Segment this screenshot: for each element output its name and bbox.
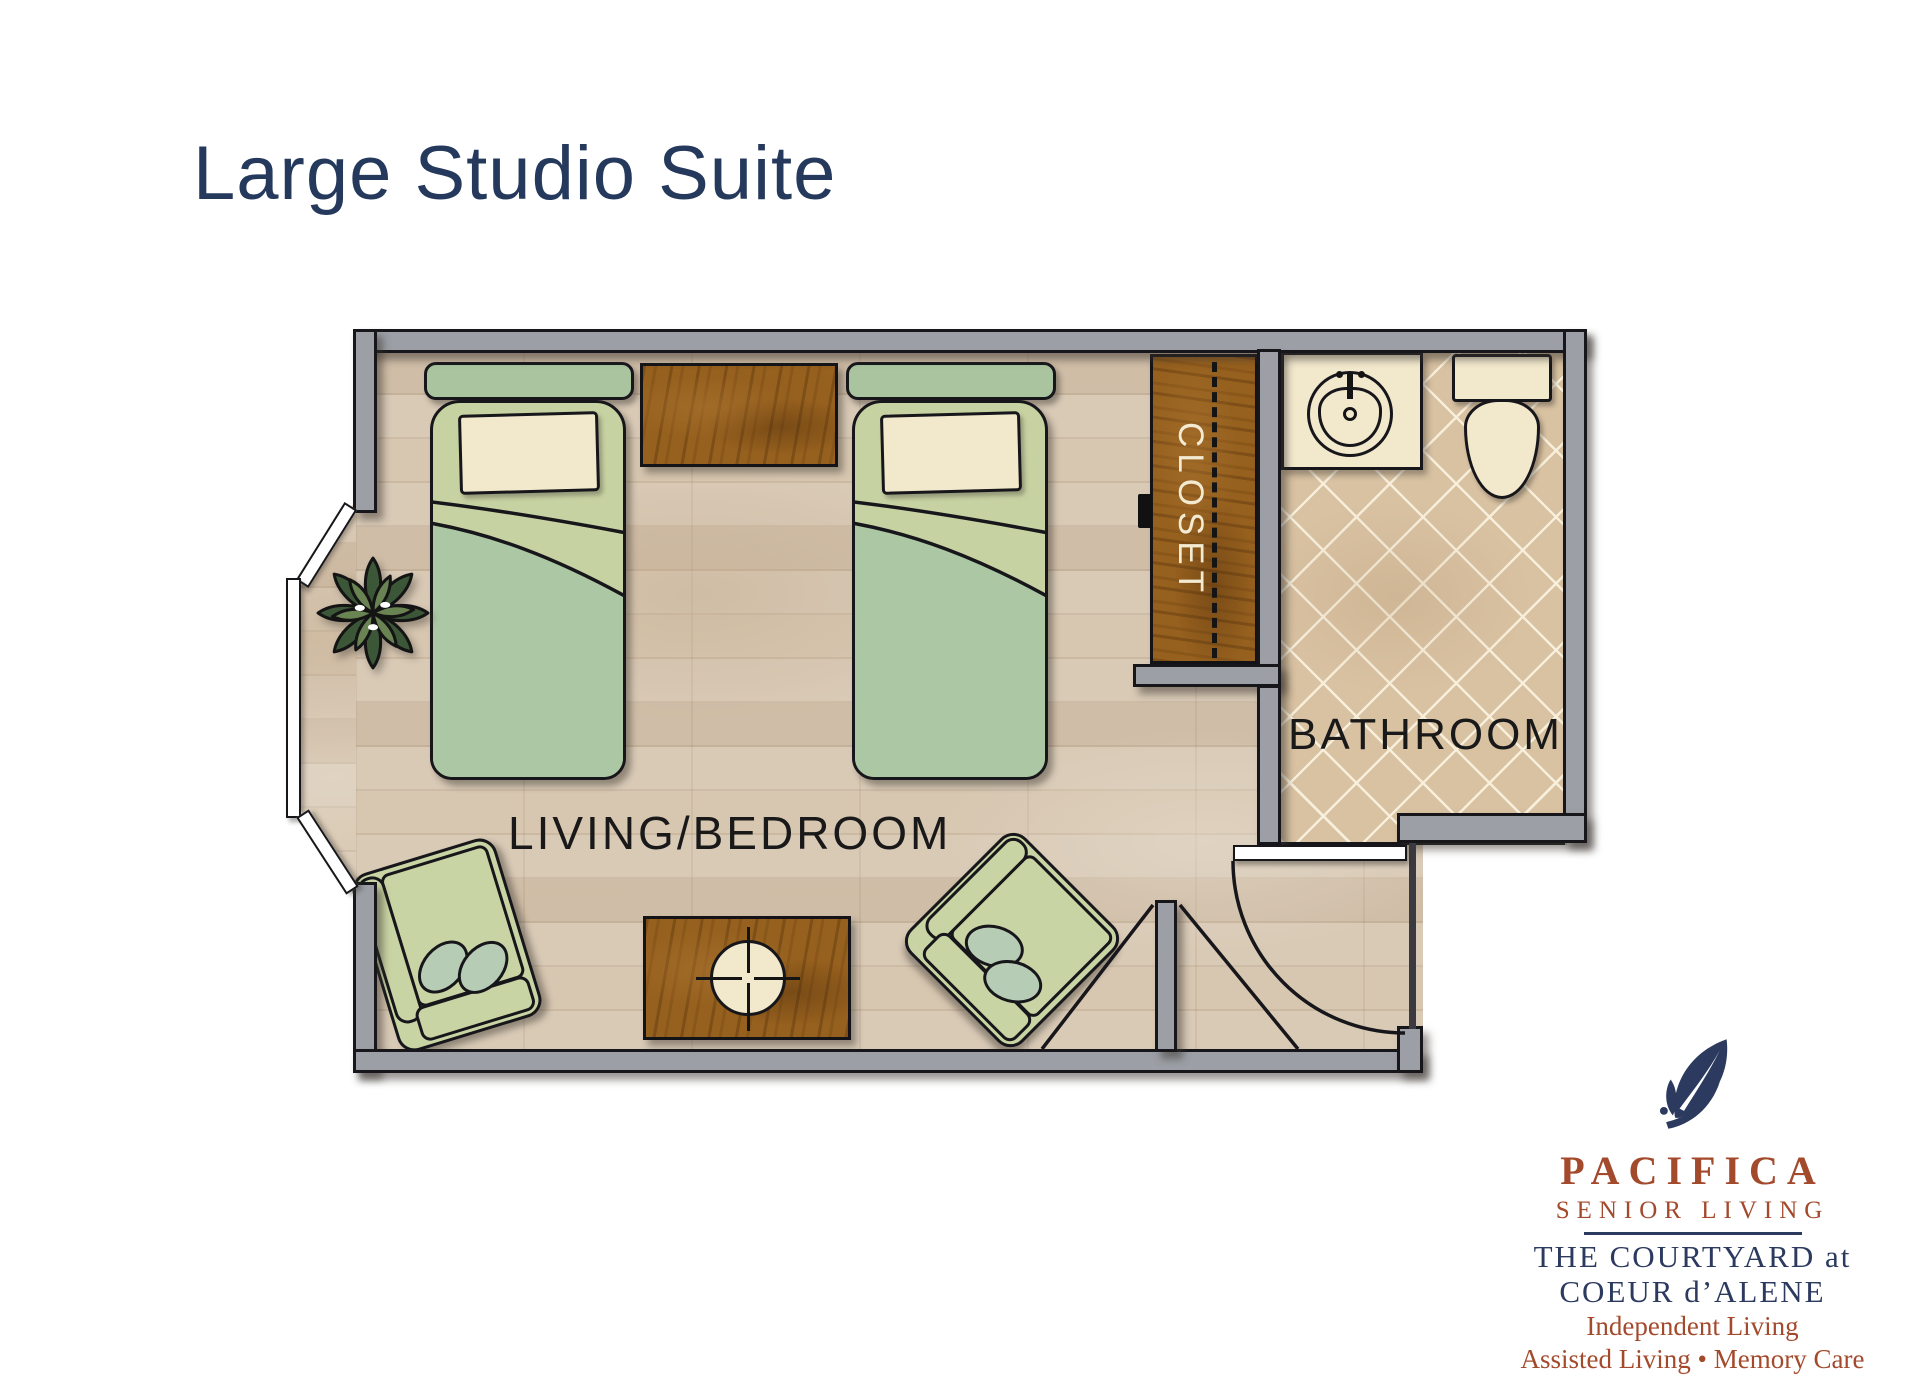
- bathroom-sink-counter: [1281, 352, 1423, 470]
- coffee-table: [643, 916, 851, 1040]
- table-plate-line-v: [747, 933, 750, 973]
- bay-window-center: [286, 578, 301, 818]
- bed-2: [852, 400, 1048, 780]
- pacifica-logo: PACIFICA SENIOR LIVING THE COURTYARD at …: [1505, 1028, 1880, 1374]
- logo-brand-sub: SENIOR LIVING: [1505, 1197, 1880, 1225]
- sink-faucet-knob-left: [1336, 371, 1343, 378]
- logo-services-line1: Independent Living: [1505, 1312, 1880, 1340]
- wall-bathroom-bottom-right: [1397, 813, 1587, 843]
- wall-entry-corner-stub: [1397, 1026, 1423, 1073]
- logo-community-line1: THE COURTYARD at: [1505, 1241, 1880, 1272]
- logo-community-line2: COEUR d’ALENE: [1505, 1276, 1880, 1307]
- bed-1: [430, 400, 626, 780]
- bathroom-label: BATHROOM: [1288, 710, 1563, 760]
- wall-bottom: [353, 1049, 1423, 1073]
- sink-drain: [1343, 407, 1357, 421]
- wall-left-lower: [353, 882, 377, 1073]
- closet-rod-dashed-line: [1212, 362, 1217, 658]
- logo-divider: [1584, 1232, 1802, 1235]
- closet-handle: [1138, 494, 1152, 528]
- potted-plant: [312, 552, 434, 674]
- bed-2-headboard: [846, 362, 1056, 400]
- logo-services-line2: Assisted Living • Memory Care: [1505, 1345, 1880, 1373]
- closet-label: CLOSET: [1170, 360, 1210, 660]
- wall-top: [353, 329, 1587, 353]
- table-plate-line-h2: [754, 977, 794, 980]
- table-plate-line-v2: [747, 983, 750, 1023]
- sink-faucet-knob-right: [1358, 371, 1365, 378]
- logo-brand: PACIFICA: [1505, 1147, 1880, 1194]
- wall-left-upper: [353, 329, 377, 513]
- toilet-tank: [1452, 354, 1552, 402]
- leaf-icon: [1637, 1028, 1749, 1140]
- wall-closet-right: [1257, 349, 1281, 687]
- wall-closet-bottom: [1133, 664, 1281, 687]
- wall-bathroom-left: [1257, 685, 1281, 845]
- nightstand: [640, 363, 838, 467]
- table-plate-line-h: [702, 977, 742, 980]
- bed-1-pillow: [458, 411, 600, 495]
- wall-entry-stub: [1155, 900, 1177, 1052]
- entry-door-leaf: [1233, 845, 1407, 861]
- entry-opening-jamb: [1409, 843, 1416, 1029]
- bed-1-headboard: [424, 362, 634, 400]
- bed-2-pillow: [880, 411, 1022, 495]
- sink-faucet: [1347, 373, 1353, 399]
- living-bedroom-label: LIVING/BEDROOM: [508, 806, 951, 860]
- wall-right-bathroom: [1563, 329, 1587, 843]
